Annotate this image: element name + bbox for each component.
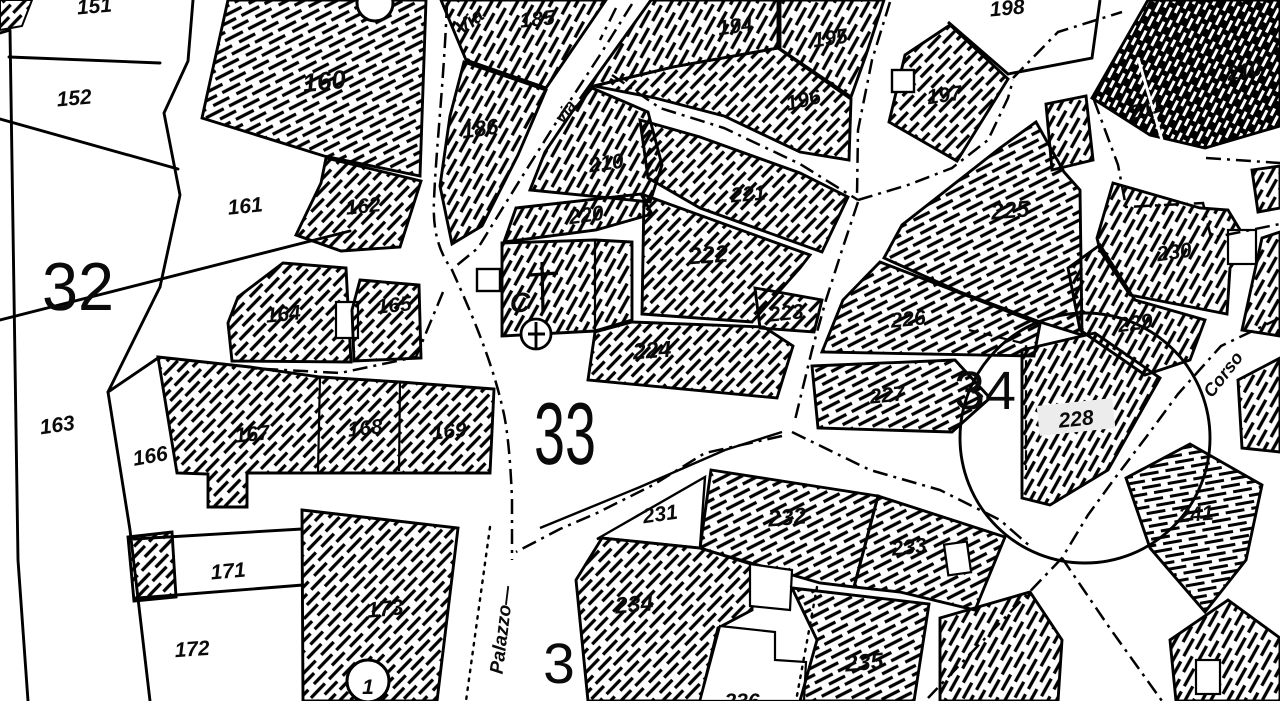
- svg-text:241: 241: [1177, 502, 1215, 528]
- svg-text:221: 221: [729, 182, 767, 208]
- svg-text:162: 162: [345, 193, 383, 220]
- svg-text:236: 236: [723, 690, 759, 701]
- svg-text:152: 152: [56, 85, 93, 111]
- svg-text:233: 233: [890, 534, 929, 561]
- svg-text:151: 151: [76, 0, 113, 20]
- svg-text:34: 34: [954, 361, 1016, 421]
- svg-text:224: 224: [631, 336, 672, 365]
- svg-text:232: 232: [766, 502, 808, 531]
- svg-text:185: 185: [519, 6, 557, 33]
- svg-text:195: 195: [811, 25, 849, 53]
- svg-text:164: 164: [265, 301, 303, 328]
- svg-text:225: 225: [989, 195, 1032, 224]
- svg-text:194: 194: [716, 13, 754, 41]
- svg-text:234: 234: [613, 589, 655, 618]
- svg-text:228: 228: [1057, 406, 1096, 433]
- svg-text:1: 1: [362, 676, 374, 699]
- svg-text:168: 168: [347, 415, 385, 442]
- svg-text:167: 167: [234, 421, 273, 448]
- svg-text:235: 235: [843, 647, 886, 676]
- svg-text:222: 222: [686, 241, 729, 271]
- svg-text:227: 227: [868, 382, 908, 409]
- svg-text:173: 173: [365, 594, 404, 623]
- svg-text:C: C: [510, 287, 531, 318]
- svg-text:171: 171: [210, 559, 247, 585]
- svg-text:226: 226: [889, 306, 928, 333]
- svg-text:165: 165: [376, 292, 414, 319]
- svg-text:3: 3: [543, 632, 575, 696]
- svg-text:223: 223: [767, 300, 806, 327]
- svg-text:32: 32: [42, 249, 114, 325]
- svg-text:172: 172: [174, 637, 211, 662]
- svg-text:33: 33: [534, 384, 596, 483]
- svg-text:169: 169: [431, 418, 469, 445]
- svg-text:186: 186: [460, 113, 501, 143]
- svg-text:163: 163: [38, 412, 76, 440]
- svg-text:161: 161: [227, 193, 264, 220]
- svg-text:160: 160: [301, 64, 348, 98]
- svg-text:198: 198: [989, 0, 1026, 21]
